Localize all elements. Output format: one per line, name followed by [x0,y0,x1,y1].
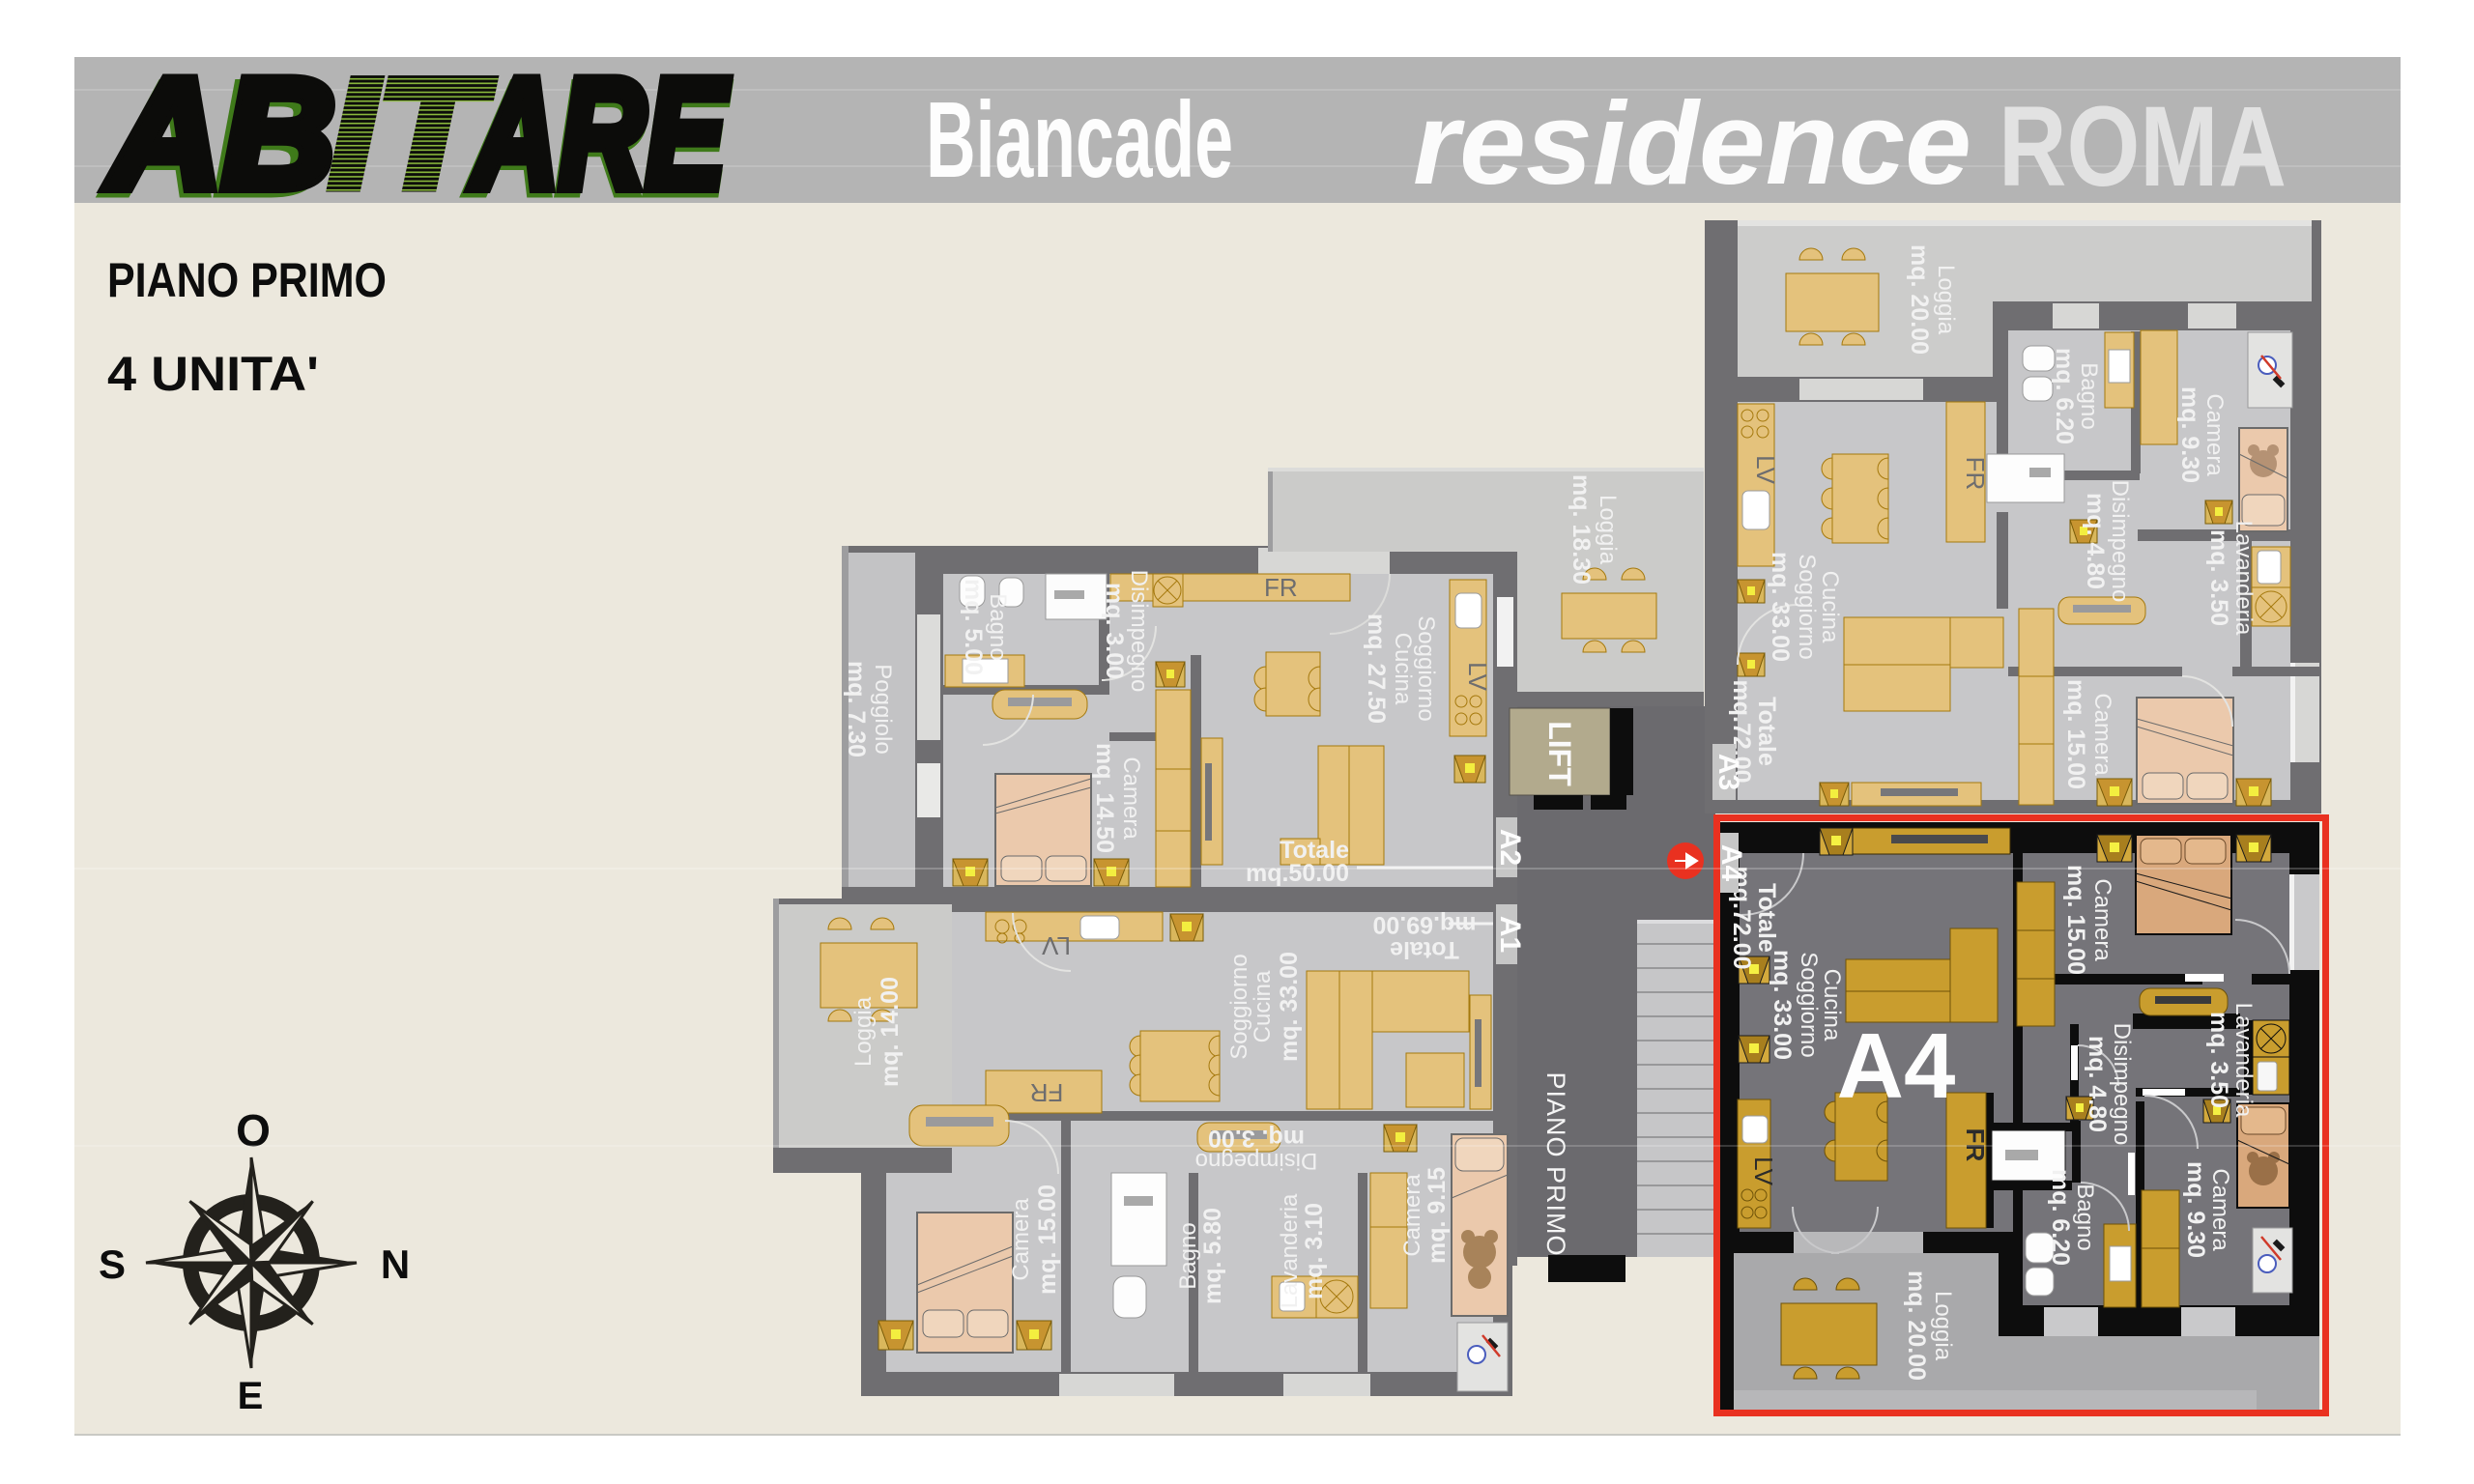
svg-text:LV: LV [1463,662,1492,692]
svg-text:Camera: Camera [1399,1174,1425,1257]
svg-text:mq. 33.00: mq. 33.00 [1769,950,1796,1060]
svg-text:residence: residence [1413,77,1971,209]
svg-text:Camera: Camera [2207,1168,2233,1251]
svg-text:Lavanderia: Lavanderia [2230,1003,2257,1118]
svg-text:Cucina: Cucina [1250,970,1276,1042]
svg-text:Camera: Camera [1118,756,1144,840]
svg-text:mq. 14.00: mq. 14.00 [877,977,904,1087]
svg-text:LV: LV [1041,931,1071,960]
svg-text:LV: LV [1749,1156,1778,1186]
svg-text:Lavanderia: Lavanderia [2230,521,2257,636]
svg-text:Loggia: Loggia [850,996,877,1067]
svg-text:Lavanderia: Lavanderia [1277,1193,1303,1308]
svg-text:mq. 9.15: mq. 9.15 [1424,1167,1451,1264]
svg-text:A4: A4 [1837,1014,1956,1118]
svg-text:mq. 4.80: mq. 4.80 [2082,493,2109,589]
svg-text:PIANO PRIMO: PIANO PRIMO [1541,1071,1570,1256]
svg-text:mq. 20.00: mq. 20.00 [1903,1270,1930,1381]
svg-text:mq. 15.00: mq. 15.00 [1034,1184,1061,1295]
svg-text:Loggia: Loggia [1930,1291,1956,1361]
svg-text:mq. 6.20: mq. 6.20 [2047,1169,2074,1266]
svg-text:mq. 3.00: mq. 3.00 [1208,1125,1305,1152]
svg-text:Bagno: Bagno [2072,1184,2098,1250]
svg-text:4 UNITA': 4 UNITA' [107,347,319,401]
svg-text:mq. 5.00: mq. 5.00 [960,579,987,675]
svg-text:mq. 3.50: mq. 3.50 [2205,529,2232,626]
svg-text:S: S [99,1241,126,1287]
svg-text:Soggiorno: Soggiorno [1413,615,1439,721]
svg-text:mq. 20.00: mq. 20.00 [1906,244,1933,355]
svg-text:Soggiorno: Soggiorno [1226,954,1252,1059]
svg-text:IT: IT [329,46,494,221]
svg-text:O: O [236,1105,271,1156]
svg-text:Camera: Camera [2089,878,2115,961]
svg-text:Disimpegno: Disimpegno [2107,480,2133,603]
svg-text:N: N [381,1241,410,1287]
svg-text:Totale: Totale [1390,936,1459,963]
svg-text:mq. 33.00: mq. 33.00 [1767,552,1794,662]
svg-text:Cucina: Cucina [1390,633,1416,705]
svg-text:PIANO PRIMO: PIANO PRIMO [107,253,387,307]
svg-text:FR: FR [1030,1078,1064,1107]
svg-text:mq. 4.80: mq. 4.80 [2084,1036,2111,1132]
svg-text:mq. 3.10: mq. 3.10 [1301,1203,1328,1299]
svg-text:mq. 5.80: mq. 5.80 [1199,1208,1226,1304]
svg-text:Camera: Camera [2201,393,2228,476]
svg-text:mq. 15.00: mq. 15.00 [2062,679,2089,789]
svg-text:Totale: Totale [1753,883,1780,953]
svg-text:ARE: ARE [470,46,730,221]
svg-text:Bagno: Bagno [985,593,1011,660]
svg-text:A2: A2 [1494,829,1526,866]
svg-text:mq. 18.30: mq. 18.30 [1568,474,1595,585]
svg-text:E: E [238,1375,264,1417]
svg-text:mq.50.00: mq.50.00 [1246,860,1349,887]
svg-text:FR: FR [1264,573,1298,602]
svg-text:mq. 27.50: mq. 27.50 [1363,614,1390,724]
svg-text:Soggiorno: Soggiorno [1796,952,1822,1057]
svg-text:Loggia: Loggia [1595,495,1621,565]
svg-text:Cucina: Cucina [1817,571,1843,643]
svg-text:AB: AB [105,46,335,221]
svg-text:Camera: Camera [2089,693,2115,776]
svg-text:Soggiorno: Soggiorno [1794,554,1820,659]
svg-text:Poggiolo: Poggiolo [870,664,896,754]
svg-text:mq. 3.00: mq. 3.00 [1101,583,1128,679]
svg-text:FR: FR [1961,457,1990,491]
svg-text:LV: LV [1751,455,1780,485]
svg-text:mq. 9.30: mq. 9.30 [2182,1161,2209,1258]
svg-text:mq. 9.30: mq. 9.30 [2176,386,2203,483]
svg-text:Disimpegno: Disimpegno [1126,570,1152,693]
svg-text:A1: A1 [1494,916,1526,953]
svg-text:Bagno: Bagno [1175,1222,1201,1289]
svg-text:Totale: Totale [1753,697,1780,766]
svg-text:mq. 14.50: mq. 14.50 [1091,743,1118,853]
svg-text:Bagno: Bagno [2076,362,2102,429]
svg-text:mq. 15.00: mq. 15.00 [2062,865,2089,975]
svg-text:A3: A3 [1712,754,1744,790]
svg-text:mq. 33.00: mq. 33.00 [1276,952,1303,1062]
svg-text:Camera: Camera [1008,1198,1034,1281]
svg-text:Loggia: Loggia [1933,265,1959,335]
svg-text:mq. 7.30: mq. 7.30 [843,661,870,757]
svg-text:Disimpegno: Disimpegno [2109,1023,2135,1146]
svg-text:mq. 3.50: mq. 3.50 [2205,1012,2232,1108]
svg-text:Biancade: Biancade [926,80,1233,200]
svg-text:ROMA: ROMA [1999,83,2287,211]
svg-text:mq. 6.20: mq. 6.20 [2051,348,2078,444]
svg-text:Cucina: Cucina [1819,969,1845,1042]
svg-text:LIFT: LIFT [1542,721,1577,786]
